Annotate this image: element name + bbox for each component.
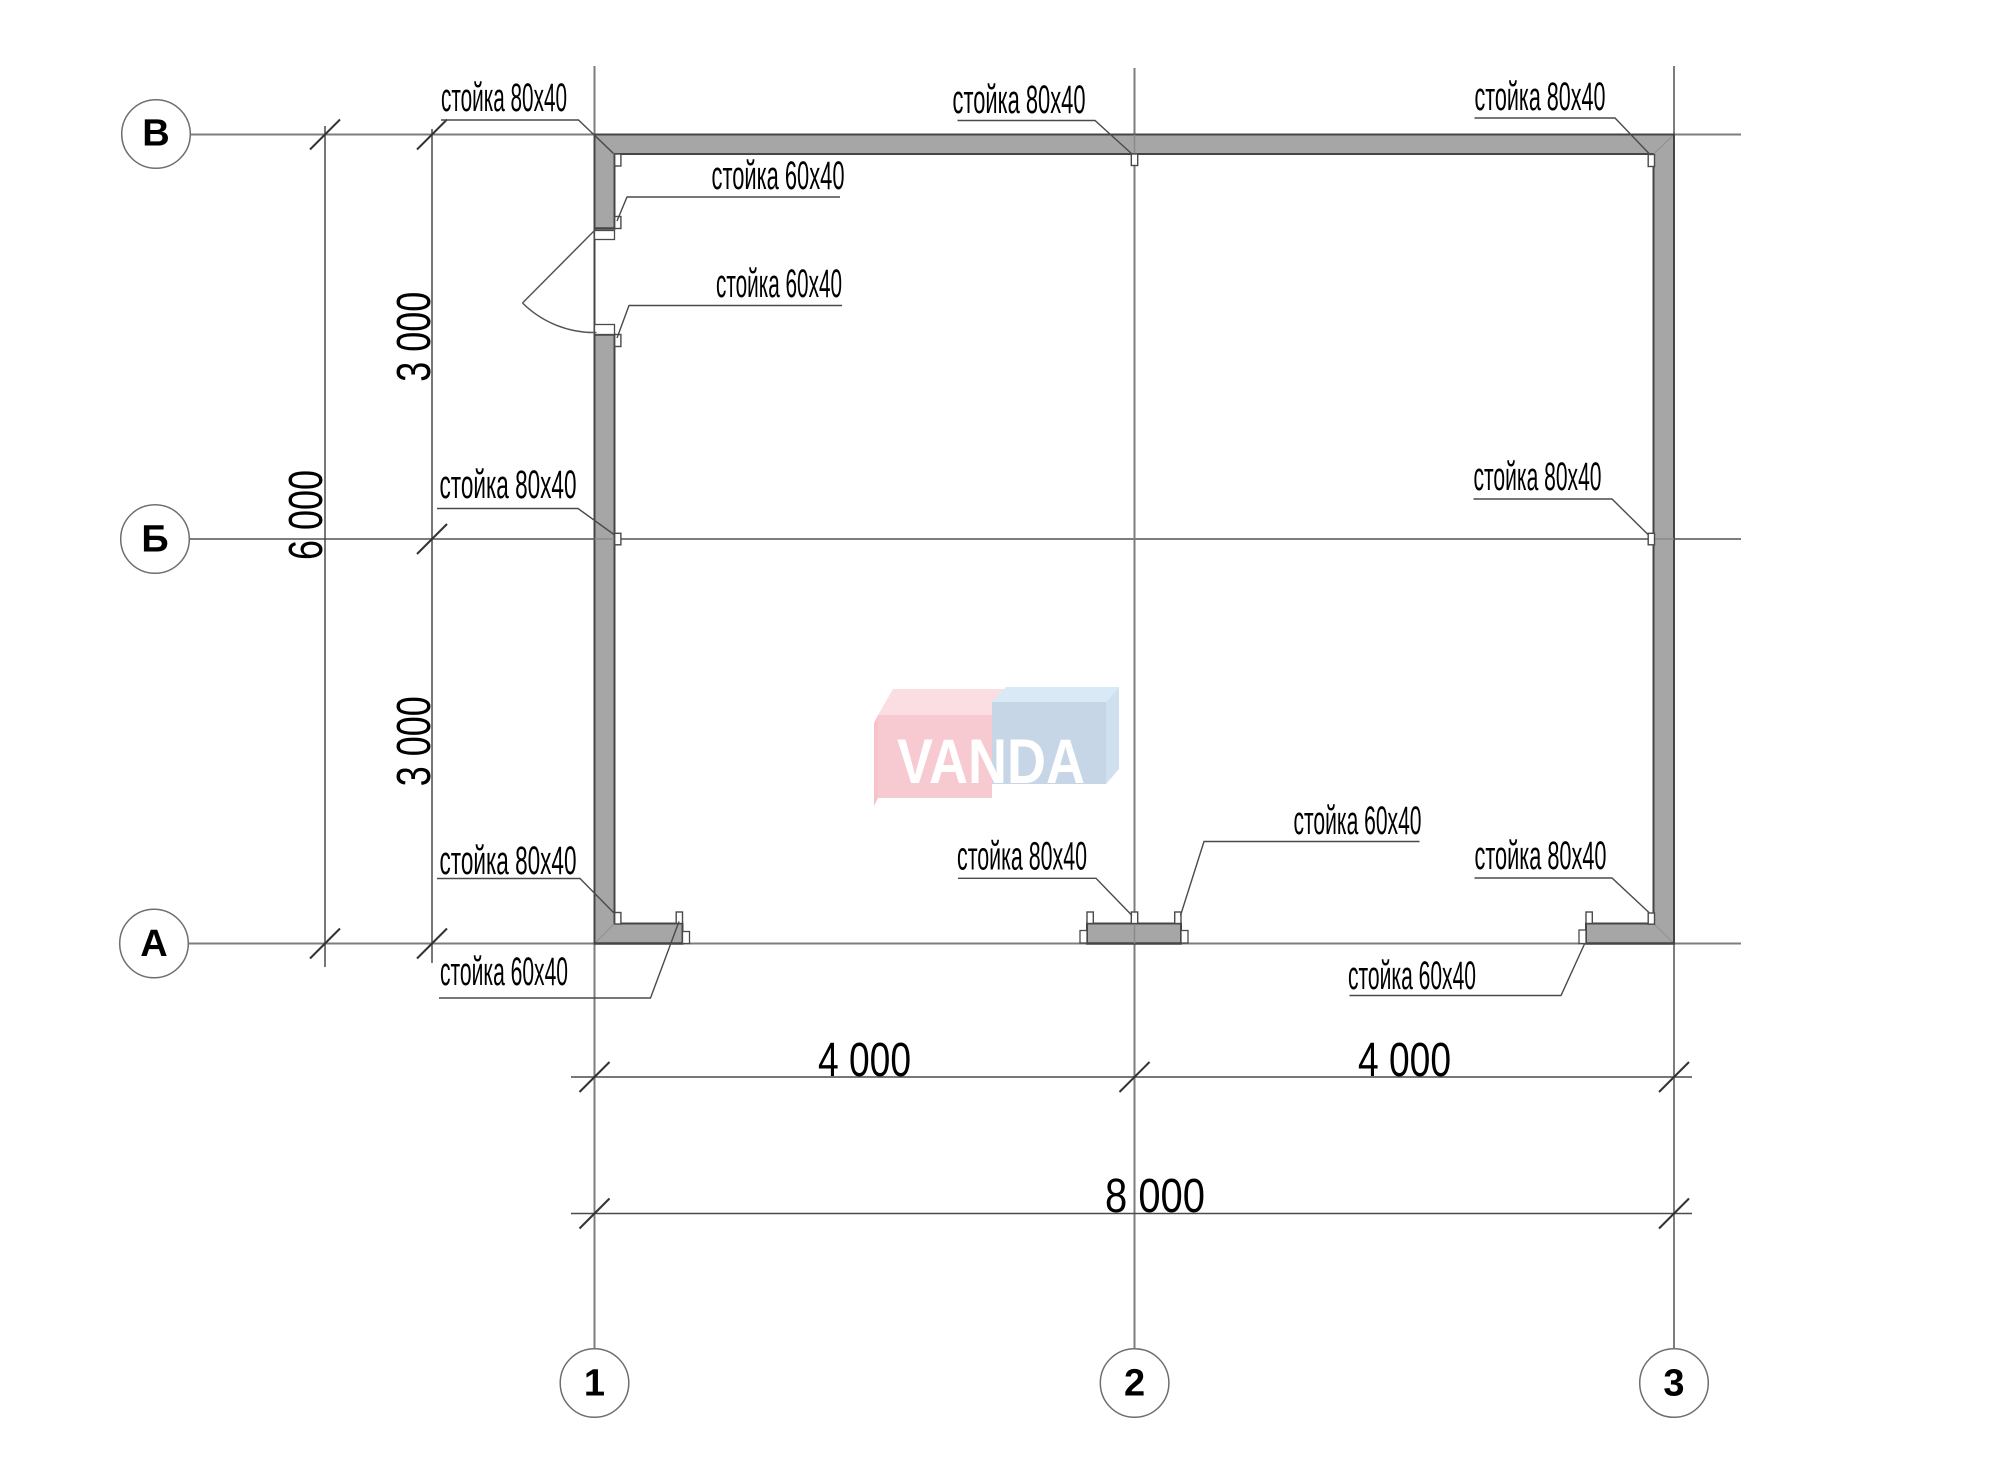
svg-text:8 000: 8 000 <box>1105 1170 1205 1223</box>
svg-text:А: А <box>140 923 167 965</box>
svg-text:стойка 80х40: стойка 80х40 <box>1475 75 1606 119</box>
svg-text:стойка 60х40: стойка 60х40 <box>1348 954 1476 998</box>
svg-text:стойка 60х40: стойка 60х40 <box>712 154 845 198</box>
svg-text:стойка 80х40: стойка 80х40 <box>1474 455 1602 499</box>
svg-text:стойка 60х40: стойка 60х40 <box>716 262 842 306</box>
svg-text:2: 2 <box>1124 1363 1145 1405</box>
svg-text:стойка 80х40: стойка 80х40 <box>953 78 1086 122</box>
svg-text:3 000: 3 000 <box>388 696 441 786</box>
svg-text:стойка 60х40: стойка 60х40 <box>440 950 568 994</box>
svg-text:стойка 80х40: стойка 80х40 <box>957 835 1087 879</box>
svg-text:стойка 80х40: стойка 80х40 <box>1475 834 1607 878</box>
svg-text:4 000: 4 000 <box>818 1034 911 1087</box>
svg-text:стойка 80х40: стойка 80х40 <box>440 839 577 883</box>
svg-text:3: 3 <box>1663 1363 1684 1405</box>
svg-text:стойка 80х40: стойка 80х40 <box>440 463 577 507</box>
svg-text:Б: Б <box>141 519 168 561</box>
svg-text:стойка 60х40: стойка 60х40 <box>1294 799 1422 843</box>
svg-text:4 000: 4 000 <box>1358 1034 1451 1087</box>
svg-text:В: В <box>142 113 169 155</box>
svg-text:3 000: 3 000 <box>388 292 441 382</box>
svg-text:VANDA: VANDA <box>897 727 1085 797</box>
svg-text:стойка 80х40: стойка 80х40 <box>441 76 567 120</box>
svg-text:6 000: 6 000 <box>280 470 333 560</box>
svg-text:1: 1 <box>584 1363 605 1405</box>
